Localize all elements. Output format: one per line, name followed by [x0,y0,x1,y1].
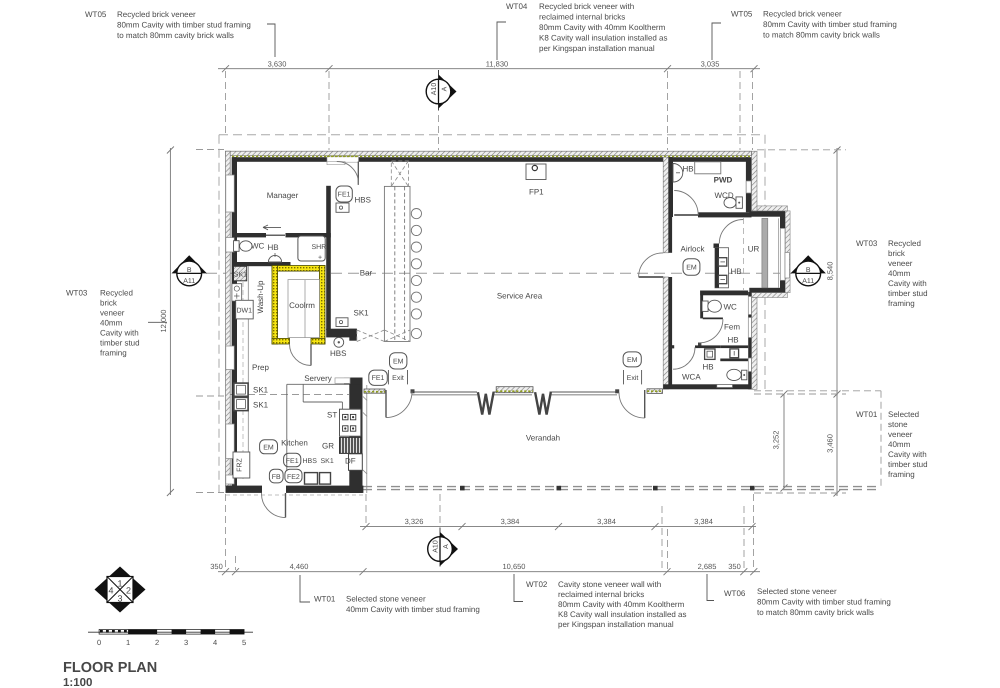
svg-text:3,630: 3,630 [268,60,287,69]
svg-text:FE1: FE1 [372,375,385,382]
svg-text:5: 5 [242,638,246,647]
svg-text:GR: GR [322,442,334,451]
svg-text:3,035: 3,035 [701,60,720,69]
svg-text:per Kingspan installation manu: per Kingspan installation manual [539,44,655,53]
svg-text:12,000: 12,000 [159,310,168,333]
svg-text:SK1: SK1 [321,458,334,465]
svg-text:HBS: HBS [355,196,371,205]
svg-text:UR: UR [748,245,760,254]
svg-text:Selected stone veneer: Selected stone veneer [757,587,837,596]
svg-text:HB: HB [268,243,279,252]
svg-text:A: A [443,544,450,549]
svg-text:timber stud: timber stud [100,339,140,348]
svg-text:+: + [318,255,322,262]
svg-text:WT02: WT02 [526,580,548,589]
svg-text:Cavity with: Cavity with [888,450,927,459]
svg-text:SK1: SK1 [253,400,269,409]
svg-text:Verandah: Verandah [526,434,560,443]
svg-text:8,540: 8,540 [826,262,835,281]
svg-text:3,384: 3,384 [597,517,616,526]
svg-text:1: 1 [126,638,130,647]
svg-text:Cavity with: Cavity with [100,329,139,338]
svg-text:4: 4 [108,586,113,596]
svg-text:FE1: FE1 [338,192,351,199]
svg-text:HB: HB [731,267,742,276]
svg-text:Manager: Manager [267,191,299,200]
svg-text:4,460: 4,460 [290,562,309,571]
svg-text:350: 350 [728,562,741,571]
svg-text:SHR: SHR [312,244,327,251]
svg-text:3,460: 3,460 [826,434,835,453]
svg-text:350: 350 [210,562,223,571]
svg-text:stone: stone [888,420,908,429]
svg-text:EM: EM [263,445,274,452]
svg-text:Recycled brick veneer with: Recycled brick veneer with [539,2,634,11]
svg-text:SK1: SK1 [253,386,269,395]
svg-text:DW1: DW1 [237,308,253,315]
svg-text:HB: HB [683,164,694,173]
svg-text:SK1: SK1 [354,309,370,318]
svg-text:reclaimed internal bricks: reclaimed internal bricks [539,13,625,22]
svg-text:3: 3 [117,594,122,604]
svg-text:FE2: FE2 [287,474,300,481]
svg-text:per Kingspan installation manu: per Kingspan installation manual [558,620,674,629]
svg-text:WT03: WT03 [856,239,878,248]
svg-text:Exit: Exit [392,374,404,382]
svg-text:FB: FB [272,474,281,481]
svg-text:WC: WC [251,242,265,251]
svg-text:brick: brick [888,249,906,258]
svg-text:Exit: Exit [627,374,639,382]
svg-text:Recycled: Recycled [100,289,133,298]
svg-text:HBS: HBS [303,458,318,465]
svg-text:to match 80mm cavity brick wal: to match 80mm cavity brick walls [757,608,874,617]
svg-text:Airlock: Airlock [680,245,705,254]
svg-text:Selected: Selected [888,410,919,419]
svg-text:3,384: 3,384 [694,517,713,526]
svg-text:A10: A10 [431,83,438,96]
svg-text:Cavity with: Cavity with [888,279,927,288]
svg-text:to match 80mm cavity brick wal: to match 80mm cavity brick walls [117,31,234,40]
svg-text:40mm: 40mm [888,440,911,449]
svg-text:Recycled brick veneer: Recycled brick veneer [763,10,842,19]
svg-text:40mm Cavity with timber stud f: 40mm Cavity with timber stud framing [346,605,480,614]
svg-text:K8 Cavity wall insulation inst: K8 Cavity wall insulation installed as [539,34,668,43]
svg-text:veneer: veneer [100,309,125,318]
svg-text:brick: brick [100,299,118,308]
svg-text:to match 80mm cavity brick wal: to match 80mm cavity brick walls [763,31,880,40]
svg-text:2,685: 2,685 [698,562,717,571]
svg-text:10,650: 10,650 [503,562,526,571]
svg-text:ST: ST [327,411,337,420]
svg-text:DF: DF [345,457,356,466]
svg-text:3,326: 3,326 [405,517,424,526]
svg-text:veneer: veneer [888,259,913,268]
svg-text:FRZ: FRZ [237,457,244,471]
svg-text:40mm: 40mm [100,319,123,328]
svg-text:Servery: Servery [304,374,332,383]
svg-text:timber stud: timber stud [888,460,928,469]
svg-text:HB: HB [703,363,714,372]
svg-text:WT05: WT05 [85,10,107,19]
svg-text:Selected stone veneer: Selected stone veneer [346,595,426,604]
svg-text:A11: A11 [183,278,195,285]
svg-text:80mm Cavity with timber stud f: 80mm Cavity with timber stud framing [763,20,897,29]
svg-text:WT05: WT05 [731,10,753,19]
svg-text:80mm Cavity with timber stud f: 80mm Cavity with timber stud framing [117,21,251,30]
svg-text:1:100: 1:100 [63,677,92,688]
svg-text:FE1: FE1 [286,458,299,465]
svg-text:B: B [806,267,811,274]
svg-text:Prep: Prep [252,363,269,372]
svg-text:2: 2 [155,638,159,647]
svg-text:A10: A10 [433,540,440,553]
svg-text:WT01: WT01 [856,410,878,419]
svg-text:WC: WC [724,303,738,312]
svg-text:EM: EM [686,265,697,272]
svg-text:PWD: PWD [714,176,733,185]
svg-text:HBS: HBS [330,349,346,358]
svg-text:0: 0 [97,638,101,647]
svg-text:framing: framing [888,470,915,479]
svg-text:EM: EM [393,359,404,366]
svg-text:HB: HB [728,336,739,345]
svg-text:FP1: FP1 [529,188,544,197]
svg-text:A11: A11 [802,278,814,285]
svg-text:Wash-Up: Wash-Up [256,280,265,314]
svg-text:3: 3 [184,638,188,647]
svg-text:Fem: Fem [724,323,740,332]
svg-text:B: B [187,267,192,274]
svg-text:80mm Cavity with timber stud f: 80mm Cavity with timber stud framing [757,598,891,607]
svg-text:40mm: 40mm [888,269,911,278]
svg-text:EM: EM [627,357,638,364]
svg-text:SK1: SK1 [234,272,247,279]
svg-text:4: 4 [213,638,217,647]
svg-text:framing: framing [100,349,127,358]
svg-text:K8 Cavity wall insulation inst: K8 Cavity wall insulation installed as [558,610,687,619]
svg-text:3,252: 3,252 [772,431,781,450]
svg-text:Kitchen: Kitchen [281,439,308,448]
svg-text:3,384: 3,384 [501,517,520,526]
svg-text:A: A [442,86,449,91]
svg-text:1: 1 [117,579,122,589]
svg-text:11,830: 11,830 [486,60,508,69]
svg-text:WT01: WT01 [314,595,336,604]
svg-text:80mm Cavity with 40mm Koolther: 80mm Cavity with 40mm Kooltherm [539,23,666,32]
svg-text:FLOOR PLAN: FLOOR PLAN [63,660,157,676]
svg-text:veneer: veneer [888,430,913,439]
svg-text:Bar: Bar [360,269,373,278]
svg-text:Recycled brick veneer: Recycled brick veneer [117,10,196,19]
svg-text:WCA: WCA [682,373,701,382]
svg-text:Coolrm: Coolrm [289,301,315,310]
svg-text:80mm Cavity with 40mm Koolther: 80mm Cavity with 40mm Kooltherm [558,600,685,609]
svg-text:WT03: WT03 [66,289,88,298]
svg-text:2: 2 [126,586,131,596]
svg-text:WT04: WT04 [506,2,528,11]
svg-text:reclaimed internal bricks: reclaimed internal bricks [558,590,644,599]
svg-text:WT06: WT06 [724,589,746,598]
svg-text:Recycled: Recycled [888,239,921,248]
svg-text:Service Area: Service Area [497,292,543,301]
svg-text:framing: framing [888,299,915,308]
svg-text:timber stud: timber stud [888,289,928,298]
svg-text:Cavity stone veneer wall with: Cavity stone veneer wall with [558,580,661,589]
